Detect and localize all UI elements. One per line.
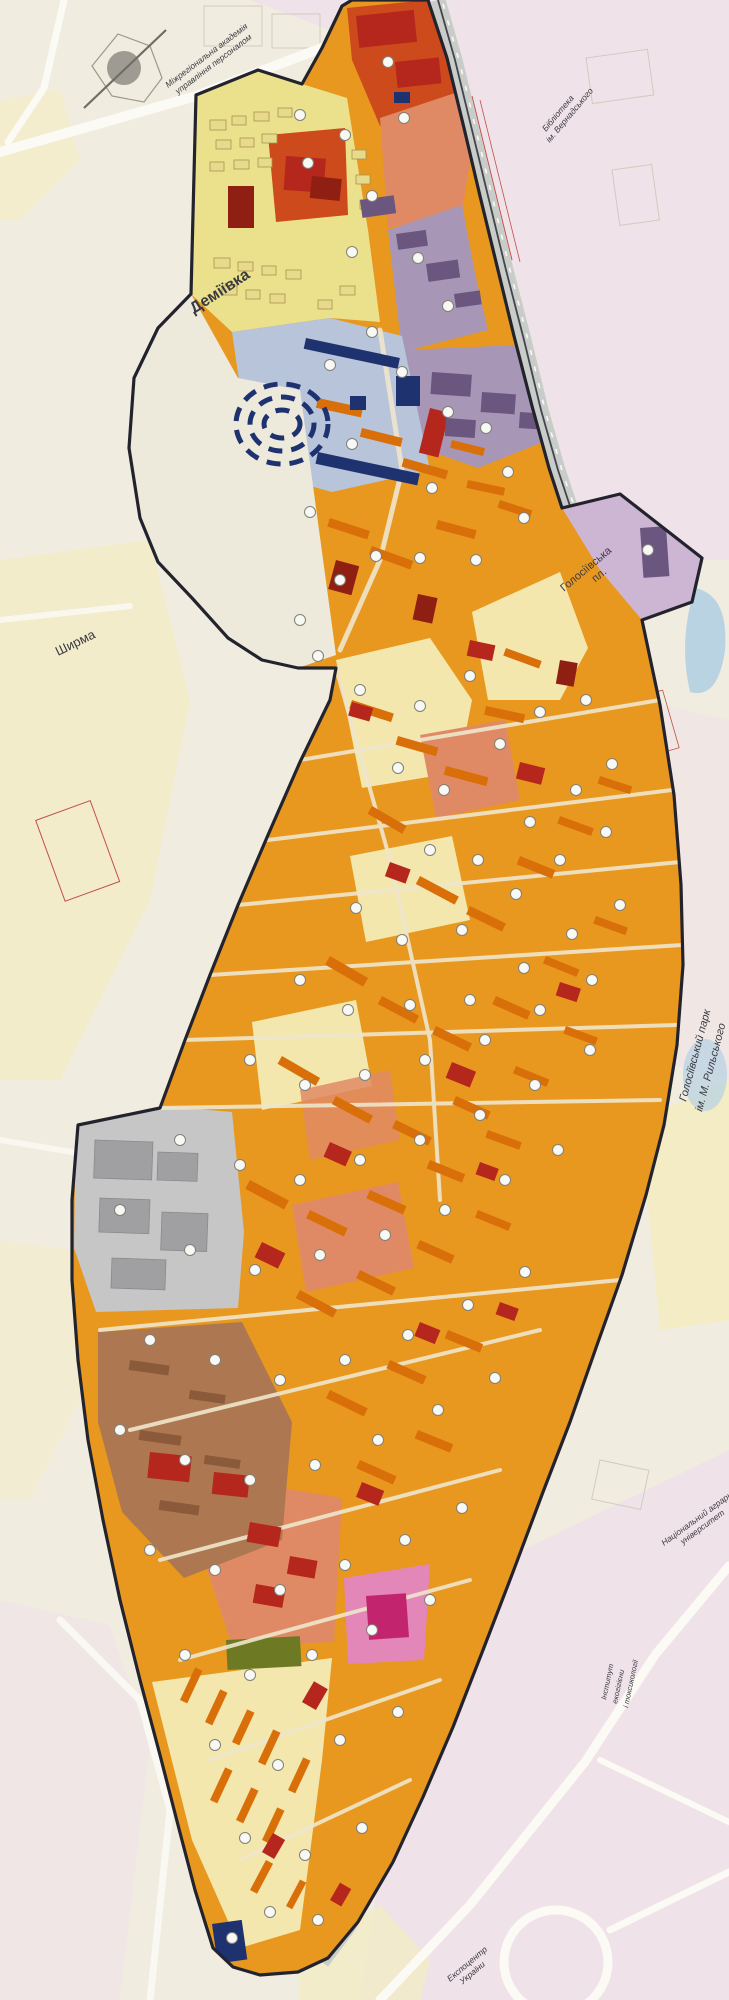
numbered-marker bbox=[115, 1205, 126, 1216]
numbered-marker bbox=[373, 1435, 384, 1446]
numbered-marker bbox=[383, 57, 394, 68]
numbered-marker bbox=[490, 1373, 501, 1384]
numbered-marker bbox=[405, 1000, 416, 1011]
numbered-marker bbox=[427, 483, 438, 494]
numbered-marker bbox=[340, 1355, 351, 1366]
numbered-marker bbox=[471, 555, 482, 566]
numbered-marker bbox=[535, 1005, 546, 1016]
numbered-marker bbox=[403, 1330, 414, 1341]
numbered-marker bbox=[571, 785, 582, 796]
numbered-marker bbox=[310, 1460, 321, 1471]
numbered-marker bbox=[145, 1545, 156, 1556]
numbered-marker bbox=[351, 903, 362, 914]
numbered-marker bbox=[581, 695, 592, 706]
numbered-marker bbox=[601, 827, 612, 838]
numbered-marker bbox=[180, 1650, 191, 1661]
numbered-marker bbox=[360, 1070, 371, 1081]
numbered-marker bbox=[415, 701, 426, 712]
numbered-marker bbox=[347, 439, 358, 450]
numbered-marker bbox=[443, 301, 454, 312]
numbered-marker bbox=[607, 759, 618, 770]
numbered-marker bbox=[371, 551, 382, 562]
numbered-marker bbox=[340, 1560, 351, 1571]
numbered-marker bbox=[355, 685, 366, 696]
numbered-marker bbox=[481, 423, 492, 434]
numbered-marker bbox=[420, 1055, 431, 1066]
numbered-marker bbox=[393, 1707, 404, 1718]
numbered-marker bbox=[457, 925, 468, 936]
numbered-marker bbox=[355, 1155, 366, 1166]
numbered-marker bbox=[343, 1005, 354, 1016]
numbered-marker bbox=[240, 1833, 251, 1844]
numbered-marker bbox=[555, 855, 566, 866]
numbered-marker bbox=[210, 1740, 221, 1751]
numbered-marker bbox=[397, 935, 408, 946]
numbered-marker bbox=[520, 1267, 531, 1278]
numbered-marker bbox=[295, 615, 306, 626]
numbered-marker bbox=[473, 855, 484, 866]
numbered-marker bbox=[180, 1455, 191, 1466]
numbered-marker bbox=[210, 1565, 221, 1576]
numbered-marker bbox=[415, 553, 426, 564]
numbered-marker bbox=[295, 110, 306, 121]
numbered-marker bbox=[397, 367, 408, 378]
numbered-marker bbox=[525, 817, 536, 828]
numbered-marker bbox=[303, 158, 314, 169]
numbered-marker bbox=[615, 900, 626, 911]
numbered-marker bbox=[175, 1135, 186, 1146]
numbered-marker bbox=[439, 785, 450, 796]
numbered-marker bbox=[425, 1595, 436, 1606]
numbered-marker bbox=[227, 1933, 238, 1944]
numbered-marker bbox=[250, 1265, 261, 1276]
numbered-marker bbox=[210, 1355, 221, 1366]
numbered-marker bbox=[519, 963, 530, 974]
numbered-marker bbox=[335, 1735, 346, 1746]
numbered-marker bbox=[245, 1055, 256, 1066]
numbered-marker bbox=[587, 975, 598, 986]
numbered-marker bbox=[400, 1535, 411, 1546]
numbered-marker bbox=[530, 1080, 541, 1091]
numbered-marker bbox=[475, 1110, 486, 1121]
numbered-marker bbox=[425, 845, 436, 856]
numbered-marker bbox=[500, 1175, 511, 1186]
numbered-marker bbox=[443, 407, 454, 418]
numbered-marker bbox=[393, 763, 404, 774]
numbered-marker bbox=[440, 1205, 451, 1216]
numbered-marker bbox=[519, 513, 530, 524]
numbered-marker bbox=[235, 1160, 246, 1171]
numbered-marker bbox=[265, 1907, 276, 1918]
numbered-marker bbox=[433, 1405, 444, 1416]
numbered-marker bbox=[503, 467, 514, 478]
numbered-marker bbox=[313, 1915, 324, 1926]
numbered-marker bbox=[300, 1080, 311, 1091]
numbered-marker bbox=[273, 1760, 284, 1771]
numbered-marker bbox=[367, 327, 378, 338]
numbered-marker bbox=[313, 651, 324, 662]
numbered-marker bbox=[413, 253, 424, 264]
numbered-marker bbox=[357, 1823, 368, 1834]
numbered-marker bbox=[511, 889, 522, 900]
numbered-marker bbox=[185, 1245, 196, 1256]
numbered-marker bbox=[340, 130, 351, 141]
numbered-marker bbox=[465, 671, 476, 682]
numbered-marker bbox=[567, 929, 578, 940]
numbered-marker bbox=[585, 1045, 596, 1056]
numbered-marker bbox=[480, 1035, 491, 1046]
numbered-marker bbox=[367, 191, 378, 202]
numbered-marker bbox=[457, 1503, 468, 1514]
numbered-marker bbox=[535, 707, 546, 718]
numbered-marker bbox=[399, 113, 410, 124]
numbered-marker bbox=[380, 1230, 391, 1241]
numbered-marker bbox=[245, 1475, 256, 1486]
numbered-marker bbox=[415, 1135, 426, 1146]
numbered-marker bbox=[145, 1335, 156, 1346]
numbered-marker bbox=[465, 995, 476, 1006]
numbered-marker bbox=[347, 247, 358, 258]
numbered-marker bbox=[295, 975, 306, 986]
zoning-map: Міжрегіональна академія управління персо… bbox=[0, 0, 729, 2000]
numbered-marker bbox=[115, 1425, 126, 1436]
numbered-marker bbox=[325, 360, 336, 371]
numbered-marker bbox=[300, 1850, 311, 1861]
numbered-marker bbox=[275, 1585, 286, 1596]
numbered-marker bbox=[295, 1175, 306, 1186]
numbered-marker bbox=[553, 1145, 564, 1156]
numbered-marker bbox=[275, 1375, 286, 1386]
numbered-marker bbox=[367, 1625, 378, 1636]
zone-olive-green bbox=[226, 1636, 301, 1670]
numbered-marker bbox=[245, 1670, 256, 1681]
numbered-marker bbox=[307, 1650, 318, 1661]
numbered-marker bbox=[495, 739, 506, 750]
numbered-marker bbox=[463, 1300, 474, 1311]
numbered-marker bbox=[643, 545, 654, 556]
numbered-marker bbox=[305, 507, 316, 518]
numbered-marker bbox=[335, 575, 346, 586]
numbered-marker bbox=[315, 1250, 326, 1261]
